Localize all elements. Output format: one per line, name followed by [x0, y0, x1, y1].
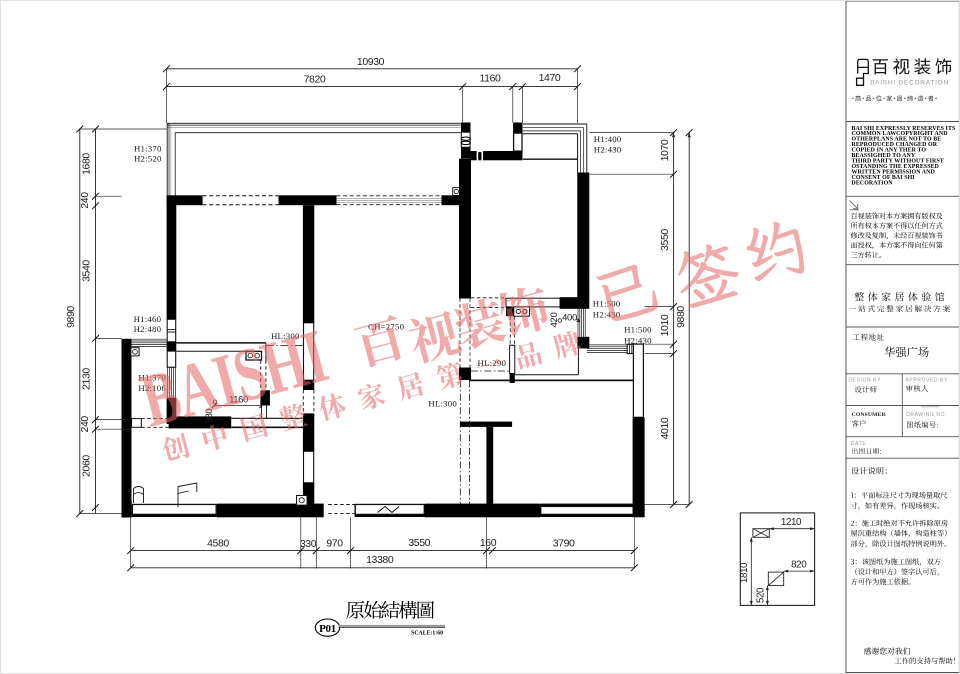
svg-text:SCALE:1:60: SCALE:1:60	[411, 630, 443, 636]
svg-text:P01: P01	[319, 623, 336, 635]
svg-text:3550: 3550	[659, 229, 671, 251]
svg-text:H2:480: H2:480	[134, 324, 162, 334]
svg-text:H2:430: H2:430	[594, 145, 622, 155]
svg-text:H2:520: H2:520	[134, 154, 162, 164]
svg-text:APPROVED BY: APPROVED BY	[906, 378, 949, 384]
svg-text:DESIGN BY: DESIGN BY	[848, 378, 881, 384]
svg-text:DRAWING NO: DRAWING NO	[906, 412, 945, 418]
svg-text:240: 240	[79, 416, 91, 433]
svg-text:3540: 3540	[81, 260, 93, 282]
svg-text:DECORATION: DECORATION	[852, 180, 894, 186]
svg-text:1070: 1070	[659, 139, 671, 161]
svg-text:9880: 9880	[675, 306, 687, 328]
svg-text:DATE: DATE	[851, 441, 866, 447]
svg-text:4580: 4580	[207, 537, 229, 549]
svg-text:H1:370: H1:370	[134, 144, 162, 154]
svg-text:3790: 3790	[553, 537, 575, 549]
svg-text:1010: 1010	[659, 314, 671, 336]
svg-text:520: 520	[755, 587, 766, 603]
svg-text:1160: 1160	[480, 72, 502, 84]
svg-text:BAISHI DECORATION: BAISHI DECORATION	[870, 79, 949, 86]
svg-text:13380: 13380	[366, 554, 394, 566]
svg-text:400: 400	[562, 312, 577, 323]
svg-text:CONSUMER: CONSUMER	[852, 412, 887, 418]
svg-text:2130: 2130	[81, 368, 93, 390]
svg-text:2060: 2060	[81, 455, 93, 477]
svg-text:4010: 4010	[659, 417, 671, 439]
svg-text:160: 160	[480, 537, 497, 549]
svg-text:1810: 1810	[739, 562, 750, 583]
svg-text:10930: 10930	[357, 56, 385, 68]
svg-text:820: 820	[791, 559, 807, 570]
svg-text:H1:400: H1:400	[594, 134, 622, 144]
svg-text:3550: 3550	[408, 537, 430, 549]
svg-text:970: 970	[326, 537, 343, 549]
svg-text:1470: 1470	[539, 72, 561, 84]
svg-text:1680: 1680	[81, 153, 93, 175]
svg-text:7820: 7820	[304, 74, 326, 86]
svg-text:240: 240	[79, 192, 91, 209]
svg-text:H1:500: H1:500	[624, 325, 652, 335]
svg-text:HL:300: HL:300	[428, 399, 457, 409]
svg-text:1210: 1210	[781, 517, 802, 528]
svg-text:9890: 9890	[65, 306, 77, 328]
svg-text:H2:430: H2:430	[624, 336, 652, 346]
svg-text:H1:460: H1:460	[134, 314, 162, 324]
svg-text:330: 330	[300, 538, 317, 550]
